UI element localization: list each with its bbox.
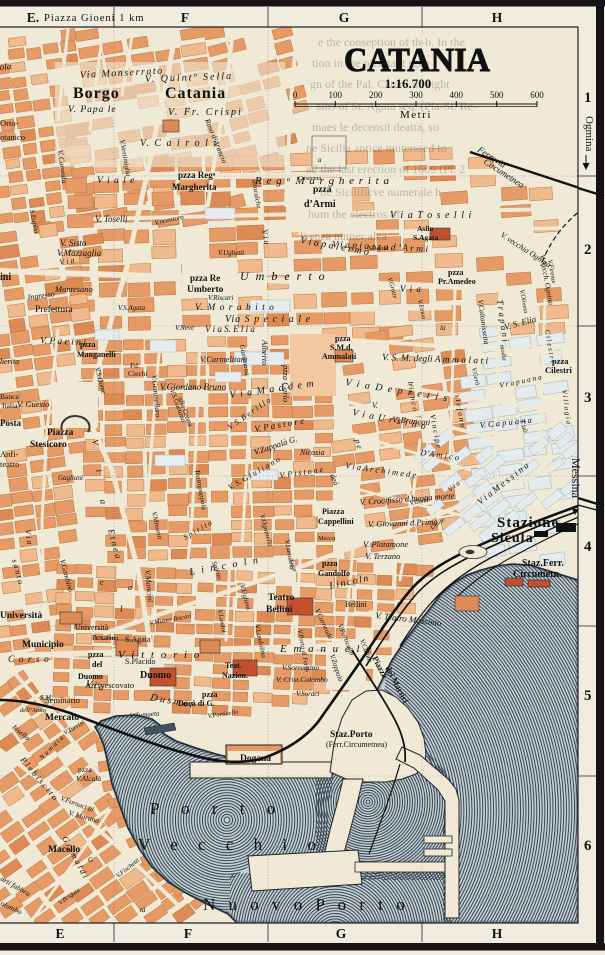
svg-text:V.Riscari: V.Riscari: [208, 294, 233, 302]
svg-text:5: 5: [584, 688, 592, 704]
svg-text:Piazza: Piazza: [322, 507, 344, 516]
svg-text:V e c c h i o: V e c c h i o: [138, 835, 324, 854]
svg-text:V. Sisto: V. Sisto: [60, 238, 87, 248]
svg-text:Anfi-: Anfi-: [0, 449, 19, 459]
svg-text:Ammalati: Ammalati: [322, 352, 357, 361]
svg-text:V. Terzano: V. Terzano: [365, 551, 400, 561]
svg-text:S.M.: S.M.: [40, 694, 53, 702]
svg-text:V. Guesio: V. Guesio: [17, 399, 49, 409]
svg-text:Università: Università: [75, 623, 109, 632]
svg-text:pzza: pzza: [448, 268, 464, 277]
svg-text:Duomo: Duomo: [140, 670, 171, 681]
svg-text:V. M o r a b i t o: V. M o r a b i t o: [195, 303, 275, 313]
svg-text:dell’Aiuto: dell’Aiuto: [20, 707, 47, 714]
svg-text:V.Soraci: V.Soraci: [296, 690, 319, 698]
svg-text:pzza: pzza: [88, 650, 104, 659]
svg-text:Gagliani: Gagliani: [58, 474, 83, 482]
svg-text:V i a S. E l i a: V i a S. E l i a: [205, 324, 255, 334]
svg-text:pzza: pzza: [202, 690, 218, 699]
svg-text:Circumetn.: Circumetn.: [513, 569, 562, 580]
svg-text:P o r t o: P o r t o: [150, 799, 284, 818]
svg-text:Ciechi: Ciechi: [128, 369, 148, 378]
svg-text:teatro: teatro: [0, 459, 19, 469]
svg-text:Nicosia: Nicosia: [299, 448, 324, 457]
svg-text:ini: ini: [0, 272, 11, 283]
svg-text:G: G: [339, 10, 350, 25]
svg-text:Margherita: Margherita: [172, 182, 217, 192]
svg-text:U m b e r t o: U m b e r t o: [240, 269, 327, 283]
svg-text:V i a l e: V i a l e: [97, 176, 135, 186]
svg-text:Caserma: Caserma: [298, 175, 321, 182]
svg-text:Banca: Banca: [0, 392, 19, 401]
svg-text:V.Ughetti: V.Ughetti: [218, 249, 244, 257]
svg-text:F: F: [184, 926, 192, 941]
svg-text:Bellini: Bellini: [345, 600, 368, 609]
svg-text:Orto-: Orto-: [0, 118, 19, 128]
svg-text:Italia: Italia: [2, 401, 18, 410]
svg-text:4: 4: [584, 539, 592, 555]
svg-text:H: H: [492, 926, 503, 941]
svg-text:S.Agata: S.Agata: [125, 635, 151, 644]
svg-text:V i a: V i a: [400, 284, 422, 294]
svg-text:Posta: Posta: [0, 418, 21, 428]
svg-text:Staz.Porto: Staz.Porto: [330, 730, 373, 740]
svg-text:(Ferr.Circumetnea): (Ferr.Circumetnea): [326, 740, 387, 749]
svg-text:otanico: otanico: [0, 132, 25, 142]
svg-text:Montesano: Montesano: [54, 284, 93, 294]
svg-text:S.M.d.: S.M.d.: [330, 343, 352, 352]
svg-text:V.: V.: [372, 401, 378, 410]
svg-text:V. C a i r o l i: V. C a i r o l i: [140, 138, 218, 149]
svg-text:Nazion.: Nazion.: [222, 671, 248, 680]
svg-text:maes le decensit deatta,: maes le decensit deatta, so: [312, 120, 439, 134]
svg-text:V. Fr. Crispi: V. Fr. Crispi: [168, 107, 243, 118]
svg-text:Asilo: Asilo: [417, 224, 434, 233]
svg-text:V.Neve: V.Neve: [175, 324, 194, 332]
svg-text:Municipio: Municipio: [22, 640, 64, 650]
svg-text:100: 100: [329, 90, 343, 100]
svg-text:la: la: [440, 324, 446, 332]
svg-text:6: 6: [584, 838, 592, 854]
svg-text:200: 200: [369, 90, 383, 100]
svg-text:V. Platamone: V. Platamone: [363, 539, 408, 549]
svg-text:G: G: [336, 926, 347, 941]
svg-text:Dogana: Dogana: [240, 754, 271, 764]
svg-text:ains of St. Agata seq. (Pia-S: ains of St. Agata seq. (Pia-St. Re-: [316, 99, 477, 113]
svg-text:Catania: Catania: [165, 85, 226, 102]
svg-text:Piazza Gioeni 1 km: Piazza Gioeni 1 km: [44, 13, 145, 24]
svg-text:E m a n u e l e: E m a n u e l e: [279, 643, 373, 655]
svg-text:V i a T o s e l l i: V i a T o s e l l i: [390, 210, 472, 221]
svg-text:S.Agata: S.Agata: [368, 245, 388, 252]
svg-text:V. Crist.Colombo: V. Crist.Colombo: [276, 675, 328, 684]
svg-text:Piazza: Piazza: [47, 428, 74, 438]
svg-text:ad the last erection of 1609 (: ad the last erection of 1609 (Pl. 2: [306, 162, 465, 176]
svg-text:pzza: pzza: [335, 334, 351, 343]
svg-text:pzza Re: pzza Re: [190, 273, 220, 283]
svg-text:Ogmina: Ogmina: [583, 116, 595, 152]
svg-text:Stesicoro: Stesicoro: [30, 440, 67, 450]
svg-text:1: 1: [584, 90, 592, 106]
svg-text:600: 600: [530, 90, 544, 100]
svg-text:S.Agata: S.Agata: [413, 233, 438, 242]
svg-text:Mercato: Mercato: [45, 713, 79, 723]
svg-text:del: del: [92, 660, 103, 669]
svg-text:a: a: [318, 156, 322, 164]
svg-text:ola: ola: [0, 61, 12, 72]
svg-text:V. Toselli: V. Toselli: [95, 214, 128, 224]
svg-text:Bellini: Bellini: [266, 605, 293, 615]
svg-text:V. Papa le: V. Papa le: [68, 105, 117, 115]
svg-text:Teatro: Teatro: [268, 593, 295, 603]
svg-text:S.Placido: S.Placido: [125, 657, 155, 666]
svg-text:N u o v o P o r t o: N u o v o P o r t o: [203, 895, 409, 914]
svg-text:2: 2: [584, 242, 592, 258]
svg-text:V.Sorrentino: V.Sorrentino: [282, 663, 320, 672]
svg-text:Prefettura: Prefettura: [35, 304, 73, 315]
svg-text:Gandolfo: Gandolfo: [318, 569, 350, 578]
svg-text:Manganelli: Manganelli: [77, 350, 116, 359]
svg-text:400: 400: [450, 90, 464, 100]
svg-text:Pr.Amedeo: Pr.Amedeo: [438, 277, 476, 286]
svg-text:CATANIA: CATANIA: [344, 42, 490, 79]
svg-text:tà: tà: [140, 906, 146, 914]
svg-text:Teat.: Teat.: [225, 661, 242, 670]
svg-text:pzza: pzza: [322, 559, 338, 568]
svg-text:C o r s o: C o r s o: [8, 655, 50, 665]
svg-text:Metri: Metri: [400, 109, 432, 121]
svg-text:Messina: Messina: [569, 458, 583, 499]
svg-text:tie Sicilificve numerale h: tie Sicilificve numerale h: [320, 185, 441, 199]
svg-text:ne Sicilia antice muterssed: ne Sicilia antice muterssed to: [306, 141, 447, 155]
svg-text:a: a: [128, 583, 132, 592]
svg-text:pzza: pzza: [78, 765, 92, 774]
svg-text:V.S.Anna: V.S.Anna: [95, 635, 118, 642]
svg-text:1:16.700: 1:16.700: [385, 76, 432, 91]
svg-text:E.: E.: [27, 10, 39, 25]
svg-text:Cappellini: Cappellini: [318, 517, 354, 526]
svg-text:d’Armi: d’Armi: [304, 199, 336, 210]
svg-text:300: 300: [409, 90, 423, 100]
svg-text:V.Alcalà: V.Alcalà: [76, 774, 101, 783]
svg-text:herita: herita: [0, 357, 19, 366]
svg-text:Borgo: Borgo: [73, 85, 120, 102]
svg-text:3: 3: [584, 390, 592, 406]
svg-text:c: c: [100, 578, 104, 587]
svg-text:E: E: [55, 926, 64, 941]
svg-text:Università: Università: [0, 611, 42, 621]
svg-text:0: 0: [293, 90, 298, 100]
svg-text:pzza: pzza: [313, 185, 332, 195]
svg-text:Stazione: Stazione: [497, 515, 559, 531]
svg-text:500: 500: [490, 90, 504, 100]
svg-text:H: H: [492, 10, 503, 25]
svg-text:Sicula: Sicula: [491, 531, 534, 546]
svg-text:G: G: [88, 856, 93, 864]
svg-text:Staz.Ferr.: Staz.Ferr.: [522, 558, 564, 569]
svg-text:F: F: [181, 10, 189, 25]
svg-text:V.S.Agata: V.S.Agata: [118, 304, 146, 312]
svg-text:pzza Regᵃ: pzza Regᵃ: [178, 170, 216, 180]
svg-text:Alberto: Alberto: [260, 339, 270, 366]
svg-text:Mecca: Mecca: [317, 535, 335, 542]
svg-text:Cilestri: Cilestri: [545, 365, 573, 375]
